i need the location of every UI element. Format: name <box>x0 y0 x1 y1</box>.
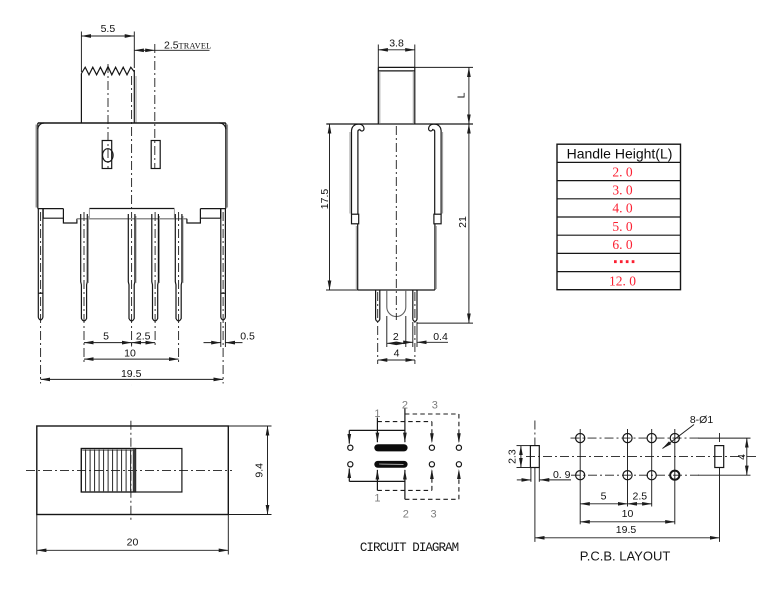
svg-text:2. 0: 2. 0 <box>612 164 633 179</box>
svg-text:TRAVEL: TRAVEL <box>179 41 212 50</box>
svg-text:P.C.B. LAYOUT: P.C.B. LAYOUT <box>580 548 671 563</box>
svg-text:8-Ø1: 8-Ø1 <box>690 414 714 426</box>
svg-text:12. 0: 12. 0 <box>609 274 636 289</box>
svg-text:CIRCUIT DIAGRAM: CIRCUIT DIAGRAM <box>360 541 459 555</box>
svg-text:3. 0: 3. 0 <box>612 183 633 198</box>
svg-text:19.5: 19.5 <box>616 524 637 536</box>
svg-text:10: 10 <box>622 508 634 520</box>
svg-text:10: 10 <box>124 347 136 359</box>
svg-text:2.5: 2.5 <box>632 490 647 502</box>
svg-text:2: 2 <box>393 331 399 343</box>
svg-text:2.5: 2.5 <box>164 39 179 51</box>
svg-text:6. 0: 6. 0 <box>612 237 633 252</box>
svg-text:5.5: 5.5 <box>101 23 116 35</box>
svg-text:2.3: 2.3 <box>507 449 519 464</box>
svg-text:0.5: 0.5 <box>240 331 255 343</box>
svg-text:L: L <box>456 92 468 98</box>
svg-text:1: 1 <box>374 408 380 420</box>
svg-text:19.5: 19.5 <box>121 368 142 380</box>
svg-text:3: 3 <box>431 508 437 520</box>
svg-text:3.8: 3.8 <box>389 37 404 49</box>
svg-text:4: 4 <box>736 454 748 460</box>
svg-text:4. 0: 4. 0 <box>612 201 633 216</box>
svg-text:17.5: 17.5 <box>319 189 331 210</box>
svg-text:0. 9: 0. 9 <box>553 469 571 481</box>
svg-text:0.4: 0.4 <box>433 331 448 343</box>
svg-text:5: 5 <box>103 331 109 343</box>
svg-text:3: 3 <box>432 400 438 412</box>
svg-text:5: 5 <box>601 490 607 502</box>
svg-text:9.4: 9.4 <box>254 463 266 478</box>
svg-text:2.5: 2.5 <box>136 331 151 343</box>
svg-text:2: 2 <box>402 400 408 412</box>
svg-text:1: 1 <box>374 492 380 504</box>
svg-text:5. 0: 5. 0 <box>612 219 633 234</box>
svg-text:4: 4 <box>394 348 400 360</box>
svg-text:20: 20 <box>127 537 139 549</box>
svg-text:21: 21 <box>457 216 469 228</box>
svg-text:2: 2 <box>403 508 409 520</box>
svg-text:Handle Height(L): Handle Height(L) <box>567 145 673 161</box>
